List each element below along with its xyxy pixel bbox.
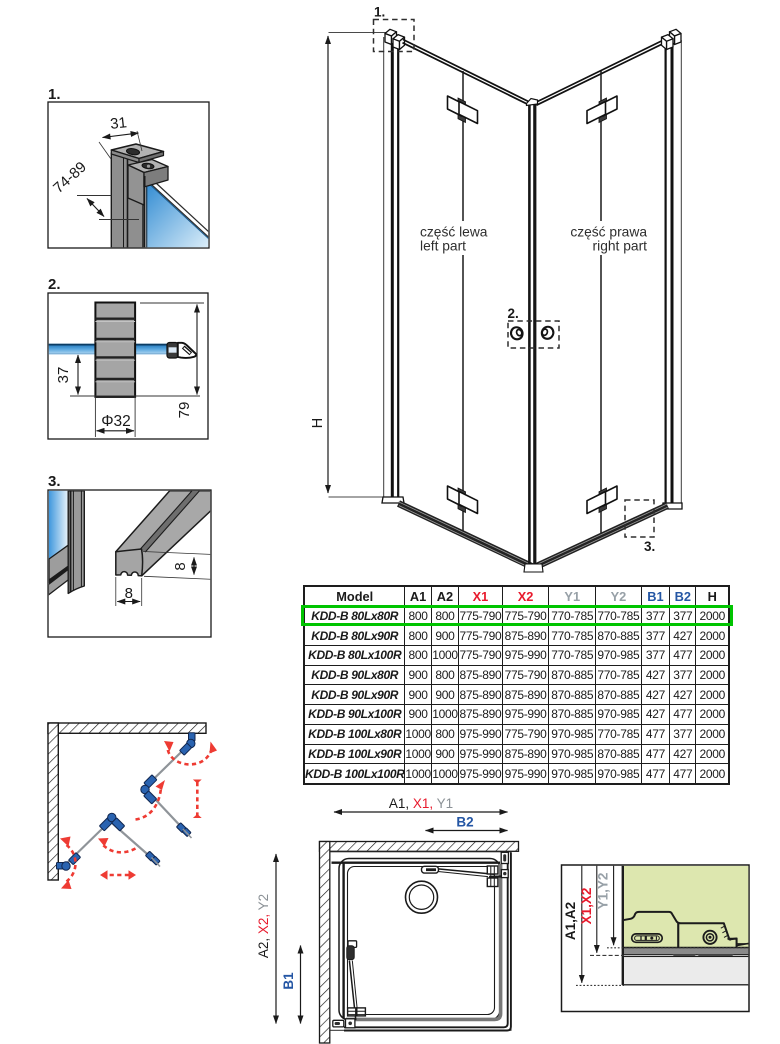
svg-text:8: 8 — [125, 585, 133, 602]
svg-text:left part: left part — [420, 239, 466, 254]
svg-text:A1, X1, Y1: A1, X1, Y1 — [389, 796, 453, 811]
svg-text:8: 8 — [172, 562, 189, 570]
svg-text:2.: 2. — [508, 306, 519, 321]
svg-text:37: 37 — [55, 367, 72, 384]
svg-text:3.: 3. — [48, 473, 61, 490]
svg-text:1.: 1. — [374, 5, 385, 20]
svg-text:1.: 1. — [48, 86, 61, 103]
svg-text:A2, X2, Y2: A2, X2, Y2 — [256, 894, 271, 958]
svg-text:2.: 2. — [48, 276, 61, 293]
svg-text:część prawa: część prawa — [570, 225, 647, 240]
svg-text:79: 79 — [176, 402, 193, 419]
svg-text:3.: 3. — [644, 539, 655, 554]
svg-text:B2: B2 — [456, 815, 473, 830]
svg-text:31: 31 — [109, 114, 127, 133]
svg-text:right part: right part — [593, 239, 648, 254]
svg-text:A1,A2: A1,A2 — [563, 902, 578, 940]
svg-text:Y1,Y2: Y1,Y2 — [596, 873, 611, 910]
svg-text:część lewa: część lewa — [420, 225, 488, 240]
svg-text:X1,X2: X1,X2 — [579, 888, 594, 925]
svg-text:Φ32: Φ32 — [101, 413, 131, 430]
svg-text:H: H — [310, 418, 326, 428]
svg-text:B1: B1 — [281, 972, 296, 990]
